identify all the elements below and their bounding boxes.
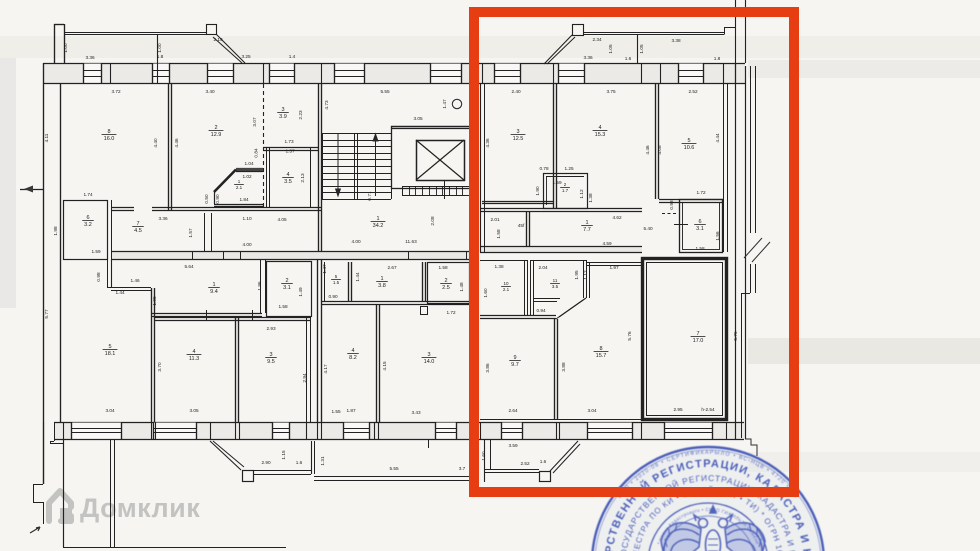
svg-text:3.2: 3.2 <box>84 222 92 228</box>
svg-text:1.57: 1.57 <box>188 228 193 238</box>
svg-text:1.47: 1.47 <box>442 99 447 109</box>
svg-text:1.46: 1.46 <box>130 278 140 283</box>
svg-text:7: 7 <box>696 331 699 337</box>
svg-text:12.9: 12.9 <box>211 132 222 138</box>
svg-text:4.05: 4.05 <box>277 217 287 222</box>
svg-text:0.98: 0.98 <box>96 272 101 282</box>
svg-text:5.55: 5.55 <box>380 89 390 94</box>
svg-text:2.34: 2.34 <box>592 37 602 42</box>
svg-text:2.19: 2.19 <box>213 37 223 42</box>
svg-text:1.56: 1.56 <box>715 231 720 241</box>
svg-text:1.60: 1.60 <box>483 288 488 298</box>
svg-text:3.5: 3.5 <box>284 179 292 185</box>
svg-text:10: 10 <box>503 281 509 286</box>
svg-text:8.2: 8.2 <box>349 355 357 361</box>
svg-text:4: 4 <box>598 125 601 131</box>
svg-text:1: 1 <box>585 220 588 226</box>
svg-text:1.00: 1.00 <box>63 43 68 53</box>
svg-text:0.71: 0.71 <box>367 191 372 201</box>
svg-text:4.40: 4.40 <box>153 138 158 148</box>
svg-text:2.90: 2.90 <box>261 460 271 465</box>
svg-text:1.59: 1.59 <box>91 249 101 254</box>
svg-text:3.05: 3.05 <box>413 116 423 121</box>
svg-text:3.1: 3.1 <box>696 226 704 232</box>
svg-text:1.90: 1.90 <box>535 186 540 196</box>
svg-text:1.05: 1.05 <box>639 44 644 54</box>
svg-text:1.25: 1.25 <box>564 166 574 171</box>
svg-text:11: 11 <box>553 278 558 283</box>
svg-text:5: 5 <box>687 138 690 144</box>
svg-text:h-2.54: h-2.54 <box>701 407 715 412</box>
svg-text:1.12: 1.12 <box>583 270 588 280</box>
svg-text:1.58: 1.58 <box>695 246 705 251</box>
svg-text:1.47: 1.47 <box>322 264 327 274</box>
svg-text:1.8: 1.8 <box>157 54 164 59</box>
svg-text:16.0: 16.0 <box>104 136 115 142</box>
svg-text:2.94: 2.94 <box>302 373 307 383</box>
svg-text:2.01: 2.01 <box>490 217 500 222</box>
svg-text:1.10: 1.10 <box>242 216 252 221</box>
svg-text:4.11: 4.11 <box>44 133 49 142</box>
svg-text:1.00: 1.00 <box>157 43 162 53</box>
svg-text:0.84: 0.84 <box>254 148 259 158</box>
svg-text:4.17: 4.17 <box>323 364 328 374</box>
svg-text:0.94: 0.94 <box>536 308 546 313</box>
svg-text:3.04: 3.04 <box>587 408 597 413</box>
svg-text:9.5: 9.5 <box>267 359 275 365</box>
svg-text:4: 4 <box>351 348 354 354</box>
svg-text:6: 6 <box>698 219 701 225</box>
svg-text:10.6: 10.6 <box>684 145 695 151</box>
svg-text:4.44: 4.44 <box>715 133 720 143</box>
svg-text:1.58: 1.58 <box>278 304 288 309</box>
svg-text:1.04: 1.04 <box>244 161 254 166</box>
svg-text:1.02: 1.02 <box>242 174 252 179</box>
svg-text:3: 3 <box>516 129 519 135</box>
svg-text:1.38: 1.38 <box>588 193 593 203</box>
svg-text:3.04: 3.04 <box>105 408 115 413</box>
svg-text:1.58: 1.58 <box>496 229 501 239</box>
svg-text:0.98: 0.98 <box>669 200 674 210</box>
svg-text:0.90: 0.90 <box>215 194 220 204</box>
svg-text:1.7: 1.7 <box>562 188 569 193</box>
svg-text:12.5: 12.5 <box>513 136 524 142</box>
svg-text:11.63: 11.63 <box>405 239 417 244</box>
svg-text:1.87: 1.87 <box>346 408 356 413</box>
svg-text:0.78: 0.78 <box>539 166 549 171</box>
svg-text:1.8: 1.8 <box>714 56 721 61</box>
svg-text:3.8: 3.8 <box>378 283 386 289</box>
svg-text:3.70: 3.70 <box>157 362 162 372</box>
svg-text:1.97: 1.97 <box>609 265 619 270</box>
svg-text:1.5: 1.5 <box>333 280 340 285</box>
svg-text:5: 5 <box>108 344 111 350</box>
svg-text:4.46: 4.46 <box>645 145 650 155</box>
svg-text:0.50: 0.50 <box>204 194 209 204</box>
svg-text:5.76: 5.76 <box>733 331 738 341</box>
svg-text:1.15: 1.15 <box>281 450 286 460</box>
svg-text:14.0: 14.0 <box>424 359 435 365</box>
svg-text:1.48: 1.48 <box>459 282 464 292</box>
svg-text:1.96: 1.96 <box>257 281 262 291</box>
svg-text:3.59: 3.59 <box>508 443 518 448</box>
svg-text:3: 3 <box>427 352 430 358</box>
svg-text:3.40: 3.40 <box>205 89 215 94</box>
svg-text:18.1: 18.1 <box>105 351 116 357</box>
svg-text:2: 2 <box>214 125 217 131</box>
svg-text:2.40: 2.40 <box>511 89 521 94</box>
svg-text:4.08: 4.08 <box>657 145 662 155</box>
svg-text:1.05: 1.05 <box>608 44 613 54</box>
svg-text:3.7: 3.7 <box>459 466 466 471</box>
svg-text:4.46: 4.46 <box>174 138 179 148</box>
svg-text:1: 1 <box>380 276 383 282</box>
svg-text:8: 8 <box>599 346 602 352</box>
svg-text:3.5: 3.5 <box>552 284 559 289</box>
svg-text:3.38: 3.38 <box>671 38 681 43</box>
svg-text:2: 2 <box>285 278 288 284</box>
svg-text:2.04: 2.04 <box>538 265 548 270</box>
svg-text:5.55: 5.55 <box>389 466 399 471</box>
svg-text:2.23: 2.23 <box>298 110 303 120</box>
svg-text:5.40: 5.40 <box>643 226 653 231</box>
svg-text:2.93: 2.93 <box>266 326 276 331</box>
svg-text:1.44: 1.44 <box>115 290 125 295</box>
svg-text:1: 1 <box>376 216 379 222</box>
svg-text:1.72: 1.72 <box>696 190 706 195</box>
svg-text:3: 3 <box>281 107 284 113</box>
svg-text:2.13: 2.13 <box>300 173 305 183</box>
svg-text:11.3: 11.3 <box>189 356 199 362</box>
svg-text:4.15: 4.15 <box>382 361 387 371</box>
svg-text:Домклик: Домклик <box>80 493 200 523</box>
svg-text:1.73: 1.73 <box>284 139 294 144</box>
svg-text:3: 3 <box>269 352 272 358</box>
svg-text:3.86: 3.86 <box>485 363 490 373</box>
svg-text:2.95: 2.95 <box>673 407 683 412</box>
svg-text:1.31: 1.31 <box>320 456 325 466</box>
svg-text:2.64: 2.64 <box>508 408 518 413</box>
svg-text:1.72: 1.72 <box>446 310 456 315</box>
svg-text:1.84: 1.84 <box>239 197 249 202</box>
svg-text:6: 6 <box>86 215 89 221</box>
svg-text:1.57: 1.57 <box>285 149 295 154</box>
svg-text:45f: 45f <box>518 223 525 228</box>
svg-text:1.44: 1.44 <box>355 272 360 282</box>
svg-text:0.90: 0.90 <box>328 294 338 299</box>
svg-text:4.62: 4.62 <box>612 215 622 220</box>
svg-text:9: 9 <box>513 355 516 361</box>
svg-text:1.38: 1.38 <box>494 264 504 269</box>
svg-text:7: 7 <box>136 221 139 227</box>
svg-text:1.98: 1.98 <box>53 226 58 236</box>
svg-text:3.36: 3.36 <box>158 216 168 221</box>
svg-text:2.67: 2.67 <box>387 265 397 270</box>
svg-text:1.6: 1.6 <box>540 459 547 464</box>
svg-text:2.08: 2.08 <box>430 216 435 226</box>
svg-text:2: 2 <box>444 278 447 284</box>
svg-text:1.6: 1.6 <box>625 56 632 61</box>
svg-text:1.6: 1.6 <box>296 460 303 465</box>
svg-text:3.72: 3.72 <box>111 89 121 94</box>
svg-text:3.88: 3.88 <box>561 362 566 372</box>
svg-text:1.59: 1.59 <box>552 180 562 185</box>
svg-text:4.73: 4.73 <box>324 100 329 110</box>
svg-text:4.00: 4.00 <box>351 239 361 244</box>
svg-text:15.3: 15.3 <box>595 132 606 138</box>
svg-text:4.59: 4.59 <box>602 241 612 246</box>
svg-text:3.05: 3.05 <box>189 408 199 413</box>
svg-text:15.7: 15.7 <box>596 353 607 359</box>
svg-text:2.1: 2.1 <box>503 287 510 292</box>
svg-text:1.95: 1.95 <box>574 270 579 280</box>
svg-text:34.2: 34.2 <box>373 223 384 229</box>
svg-text:1.74: 1.74 <box>83 192 93 197</box>
svg-text:2.5: 2.5 <box>442 285 450 291</box>
svg-text:4: 4 <box>192 349 195 355</box>
svg-text:2.1: 2.1 <box>236 185 243 190</box>
svg-text:3.1: 3.1 <box>283 285 291 291</box>
svg-text:8: 8 <box>107 129 110 135</box>
svg-text:9.7: 9.7 <box>511 362 519 368</box>
svg-text:7.7: 7.7 <box>583 227 591 233</box>
svg-text:1.49: 1.49 <box>298 287 303 297</box>
svg-text:3.36: 3.36 <box>85 55 95 60</box>
svg-text:1.55: 1.55 <box>331 409 341 414</box>
svg-text:2.52: 2.52 <box>688 89 698 94</box>
svg-text:1.58: 1.58 <box>438 265 448 270</box>
svg-text:3.07: 3.07 <box>252 117 257 127</box>
svg-text:5.76: 5.76 <box>627 331 632 341</box>
svg-text:3.25: 3.25 <box>241 54 251 59</box>
svg-text:4.5: 4.5 <box>134 228 142 234</box>
svg-text:1.05: 1.05 <box>152 296 157 306</box>
svg-text:1.12: 1.12 <box>579 189 584 199</box>
svg-text:1: 1 <box>212 282 215 288</box>
svg-text:1.60: 1.60 <box>481 451 486 461</box>
svg-text:5.64: 5.64 <box>184 264 194 269</box>
svg-text:4: 4 <box>286 172 289 178</box>
svg-text:1.4: 1.4 <box>289 54 296 59</box>
svg-text:2.52: 2.52 <box>520 461 530 466</box>
svg-text:3.9: 3.9 <box>279 114 287 120</box>
svg-text:9.4: 9.4 <box>210 289 218 295</box>
svg-text:17.0: 17.0 <box>693 338 704 344</box>
svg-text:3.43: 3.43 <box>411 410 421 415</box>
svg-text:3.75: 3.75 <box>606 89 616 94</box>
svg-text:4.36: 4.36 <box>485 138 490 148</box>
svg-text:4.00: 4.00 <box>242 242 252 247</box>
svg-text:5.77: 5.77 <box>44 309 49 319</box>
svg-text:3.36: 3.36 <box>583 55 593 60</box>
